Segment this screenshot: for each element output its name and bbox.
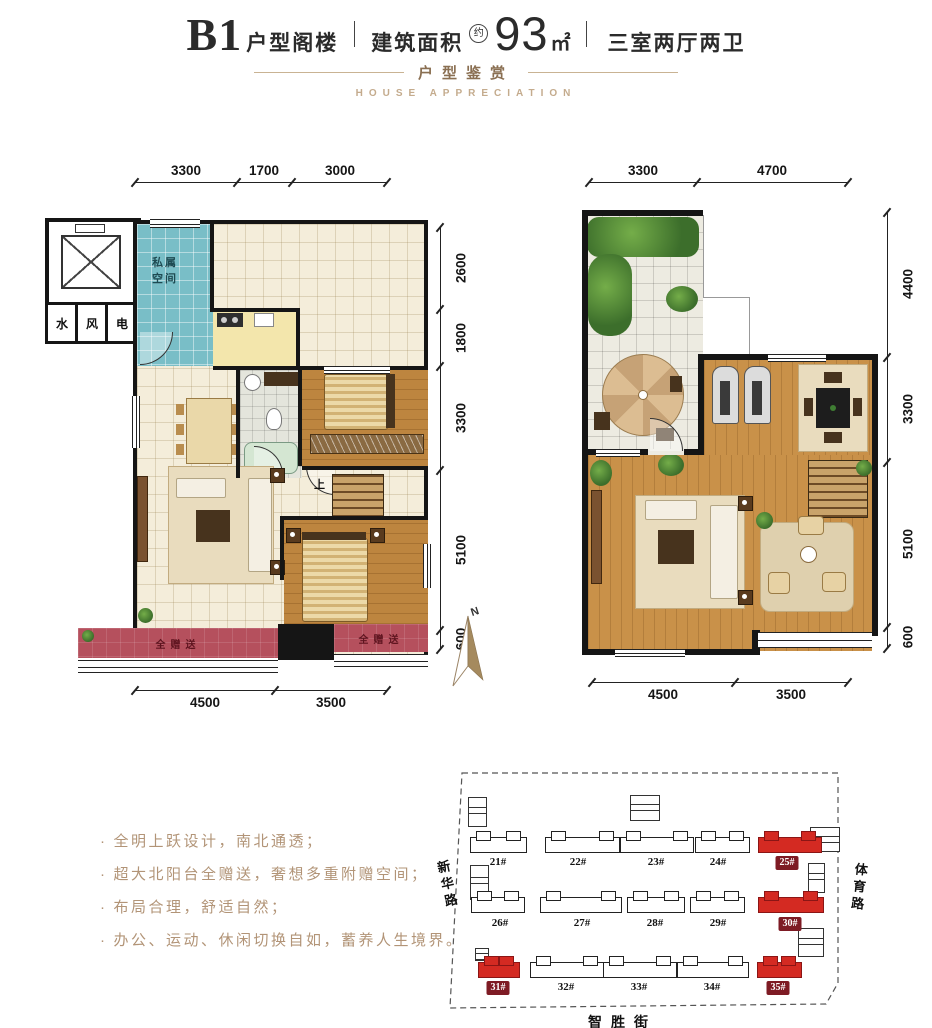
floor-plan-loft: 3300 4700 4400 3300 5100 600 4500 3500	[560, 160, 932, 712]
site-map: 21# 22# 23# 24# 25# 26# 27# 28# 29# 30# …	[440, 755, 880, 1028]
area-value: 93	[494, 6, 548, 61]
game-chair	[824, 432, 842, 443]
plant-icon	[82, 630, 94, 642]
outline-step	[703, 215, 704, 297]
dim-line	[135, 182, 387, 183]
header-divider	[586, 21, 587, 47]
treadmill-icon	[712, 366, 739, 424]
building-27	[540, 897, 622, 913]
dim-label: 3300	[454, 403, 469, 433]
building-label: 32#	[558, 981, 575, 993]
building-label: 22#	[570, 856, 587, 868]
side-table-icon	[738, 590, 753, 605]
subtitle-rule-right	[528, 72, 678, 73]
dim-label: 5100	[901, 529, 916, 559]
window	[615, 649, 685, 657]
leisure-chair	[822, 572, 846, 592]
plant-icon	[590, 460, 612, 486]
bullet-icon: ·	[100, 866, 108, 883]
dim-line	[135, 690, 387, 691]
dim-label: 4500	[648, 687, 678, 702]
dim-label: 2600	[454, 253, 469, 283]
shaft-water: 水	[45, 302, 79, 344]
selling-point-text: 全明上跃设计，南北通透；	[114, 830, 324, 851]
north-compass: N	[445, 610, 491, 694]
building-31-highlight	[478, 962, 520, 978]
dim-tick	[436, 645, 445, 655]
approx-badge: 约	[469, 24, 488, 43]
selling-point-text: 布局合理，舒适自然；	[114, 896, 289, 917]
area-label: 建筑面积	[371, 27, 463, 57]
window	[768, 354, 826, 362]
dim-label: 600	[901, 626, 916, 649]
wall-segment	[278, 624, 334, 660]
subtitle-rule-left	[254, 72, 404, 73]
plant-icon	[138, 608, 153, 623]
subtitle-cn: 户型鉴赏	[418, 62, 514, 83]
header: B1 户型阁楼 建筑面积 约 93 ㎡ 三室两厅两卫	[0, 6, 932, 61]
wall-segment	[213, 366, 300, 370]
wardrobe-icon	[310, 434, 424, 454]
building-26	[471, 897, 525, 913]
leisure-rug	[760, 522, 854, 612]
bullet-icon: ·	[100, 932, 108, 949]
game-chair	[824, 372, 842, 383]
dim-label: 4400	[901, 269, 916, 299]
floor-plan-lower: 3300 1700 3000 2600 1800 3300 5100 600 4…	[40, 160, 470, 712]
leisure-chair	[798, 516, 824, 535]
bay-window	[758, 632, 872, 648]
balcony-window	[334, 654, 428, 667]
nightstand-icon	[286, 528, 301, 543]
bullet-icon: ·	[100, 899, 108, 916]
sofa-icon	[645, 500, 697, 520]
washer-icon	[244, 374, 261, 391]
subtitle-en: HOUSE APPRECIATION	[0, 88, 932, 99]
building-29	[690, 897, 745, 913]
building-label-highlight: 25#	[776, 856, 799, 870]
building-35-highlight	[757, 962, 802, 978]
tv-cabinet-icon	[137, 476, 148, 562]
building-25-highlight	[758, 837, 822, 853]
coffee-table-icon	[196, 510, 230, 542]
wall-segment	[872, 354, 878, 636]
vanity-counter	[264, 372, 300, 386]
side-table-icon	[738, 496, 753, 511]
game-chair	[853, 398, 862, 416]
header-divider	[354, 21, 355, 47]
dim-tick	[844, 178, 853, 188]
compass-arrow-icon	[445, 610, 491, 694]
treadmill-icon	[744, 366, 771, 424]
building-label: 21#	[490, 856, 507, 868]
game-table-icon	[816, 388, 850, 428]
bullet-icon: ·	[100, 833, 108, 850]
wall-segment	[280, 520, 284, 580]
dim-label: 3500	[316, 695, 346, 710]
building-34	[677, 962, 749, 978]
dining-chair	[176, 424, 184, 435]
shaft-vent: 风	[75, 302, 109, 344]
umbrella-pole	[638, 390, 648, 400]
selling-point-text: 办公、运动、休闲切换自如，蓄养人生境界。	[114, 929, 464, 950]
dim-label: 3300	[628, 163, 658, 178]
dim-label: 3300	[901, 394, 916, 424]
terrace-greenery	[666, 286, 698, 312]
dim-label: 4500	[190, 695, 220, 710]
dining-chair	[176, 404, 184, 415]
wall-segment	[210, 308, 300, 312]
dim-label: 5100	[454, 535, 469, 565]
building-23	[620, 837, 694, 853]
unit-model-suffix: 户型阁楼	[246, 27, 338, 57]
building-label: 26#	[492, 917, 509, 929]
window	[132, 396, 140, 448]
building-label-highlight: 35#	[767, 981, 790, 995]
building-label: 28#	[647, 917, 664, 929]
headboard	[386, 374, 395, 428]
wall-segment	[296, 308, 300, 370]
dining-chair	[176, 444, 184, 455]
building-label-highlight: 30#	[779, 917, 802, 931]
window	[324, 366, 390, 374]
unit-model: B1	[187, 8, 243, 61]
dining-table-icon	[186, 398, 232, 464]
nightstand-icon	[370, 528, 385, 543]
building-32	[530, 962, 604, 978]
wall-segment	[210, 222, 214, 312]
shaft-vent-label: 风	[86, 315, 98, 332]
side-table-icon	[270, 468, 285, 483]
elevator-car-icon	[61, 235, 121, 289]
elevator-shaft	[45, 218, 141, 310]
balcony-south: 全赠送	[334, 624, 428, 652]
street-zhisheng-street: 智胜街	[588, 1012, 657, 1028]
window	[423, 544, 431, 588]
window	[596, 449, 640, 457]
building-label: 34#	[704, 981, 721, 993]
map-structure	[468, 797, 487, 827]
wall-segment	[236, 370, 240, 478]
dim-line	[440, 227, 441, 649]
tv-cabinet-icon	[591, 490, 602, 584]
plant-icon	[756, 512, 773, 529]
plant-icon	[658, 454, 684, 476]
balcony-gift-label: 全赠送	[359, 631, 404, 646]
terrace-greenery	[588, 254, 632, 336]
leisure-chair	[768, 572, 790, 594]
dim-line	[887, 212, 888, 648]
building-label: 24#	[710, 856, 727, 868]
building-30-highlight	[758, 897, 824, 913]
building-label: 27#	[574, 917, 591, 929]
sofa-icon	[710, 505, 738, 599]
shaft-water-label: 水	[56, 315, 68, 332]
headboard	[302, 532, 366, 540]
window	[150, 219, 200, 228]
building-21	[470, 837, 527, 853]
floorplan-poster: B1 户型阁楼 建筑面积 约 93 ㎡ 三室两厅两卫 户型鉴赏 HOUSE AP…	[0, 0, 932, 1028]
tea-table-icon	[800, 546, 817, 563]
stairs-up-label: 上	[314, 476, 325, 492]
wall-segment	[302, 466, 428, 470]
dim-tick	[383, 178, 392, 188]
outline-step	[749, 297, 750, 355]
building-33	[603, 962, 677, 978]
toilet-icon	[266, 408, 282, 430]
building-28	[627, 897, 685, 913]
dim-line	[589, 182, 848, 183]
stove-icon	[217, 313, 243, 327]
sofa-icon	[176, 478, 226, 498]
bed-icon	[302, 538, 368, 622]
sofa-icon	[248, 478, 272, 572]
plant-icon	[856, 460, 872, 476]
map-structure	[630, 795, 660, 821]
dim-label: 3300	[171, 163, 201, 178]
wall-segment	[582, 210, 703, 216]
building-24	[695, 837, 750, 853]
sink-icon	[254, 313, 274, 327]
balcony-north: 全赠送	[78, 628, 278, 658]
outline-step	[703, 297, 749, 298]
map-structure	[798, 928, 824, 957]
building-label: 23#	[648, 856, 665, 868]
private-space-label: 私属空间	[152, 255, 178, 287]
rooms-summary: 三室两厅两卫	[607, 27, 745, 57]
dim-tick	[844, 678, 853, 688]
map-structure	[808, 863, 825, 893]
dim-label: 4700	[757, 163, 787, 178]
building-label: 33#	[631, 981, 648, 993]
wall-segment	[698, 354, 704, 455]
selling-point-text: 超大北阳台全赠送，奢想多重附赠空间；	[114, 863, 429, 884]
wall-segment	[582, 210, 588, 655]
area-unit: ㎡	[550, 27, 570, 56]
dim-line	[592, 682, 848, 683]
terrace-chair	[594, 412, 610, 430]
building-label: 29#	[710, 917, 727, 929]
terrace-greenery	[587, 217, 699, 257]
stairs-lower	[332, 474, 384, 518]
balcony-window	[78, 660, 278, 673]
dim-tick	[383, 686, 392, 696]
dim-label: 3000	[325, 163, 355, 178]
wall-segment	[280, 516, 428, 520]
subtitle: 户型鉴赏 HOUSE APPRECIATION	[0, 62, 932, 99]
terrace-chair	[670, 376, 682, 392]
balcony-gift-label: 全赠送	[156, 636, 201, 651]
game-chair	[804, 398, 813, 416]
dim-tick	[883, 644, 892, 654]
shaft-electric-label: 电	[116, 315, 128, 332]
dim-label: 1700	[249, 163, 279, 178]
elevator-door	[75, 224, 105, 233]
dim-label: 1800	[454, 323, 469, 353]
bed-icon	[324, 374, 388, 430]
coffee-table-icon	[658, 530, 694, 564]
building-22	[545, 837, 620, 853]
wall-segment	[298, 370, 302, 466]
building-label-highlight: 31#	[487, 981, 510, 995]
dim-label: 3500	[776, 687, 806, 702]
